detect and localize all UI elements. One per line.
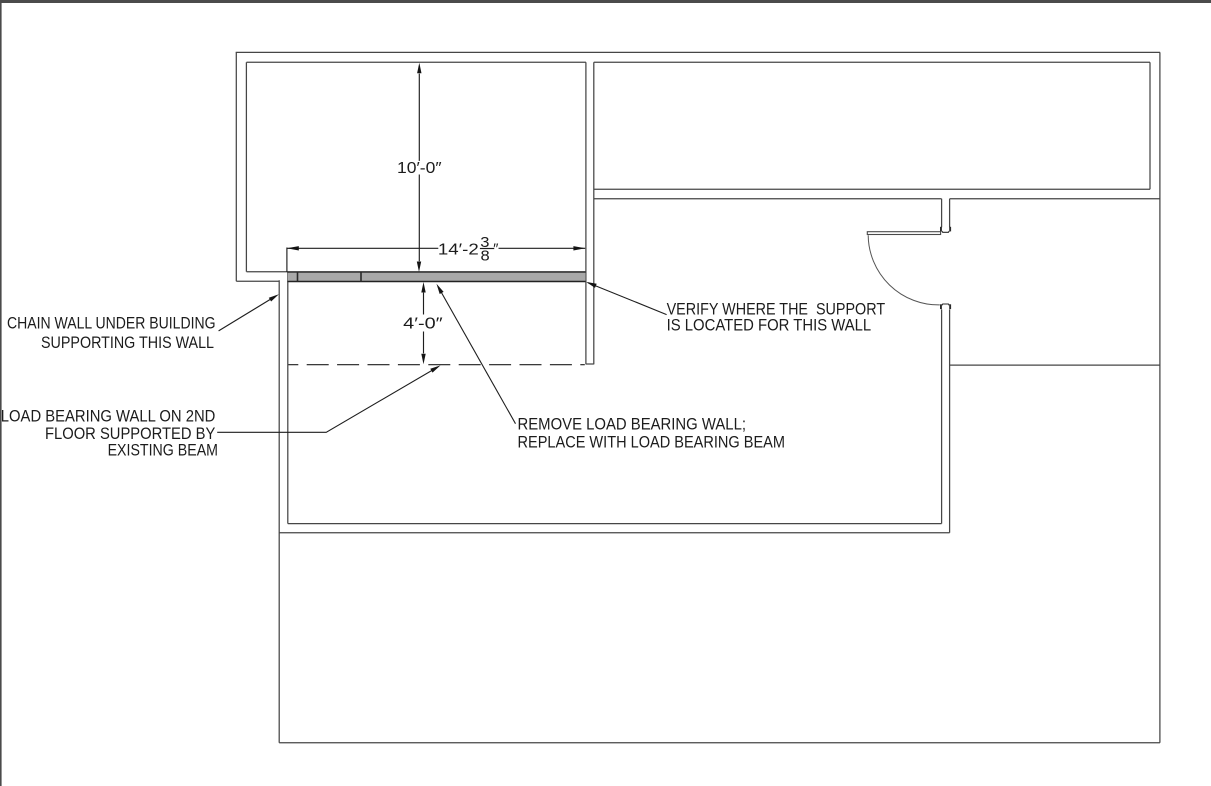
svg-text:4′-0″: 4′-0″ (403, 316, 443, 333)
svg-text:LOAD BEARING WALL ON 2ND: LOAD BEARING WALL ON 2ND (1, 407, 216, 425)
svg-text:REPLACE WITH LOAD BEARING BEAM: REPLACE WITH LOAD BEARING BEAM (518, 433, 786, 451)
svg-text:14′-2: 14′-2 (438, 242, 479, 259)
svg-text:CHAIN WALL UNDER BUILDING: CHAIN WALL UNDER BUILDING (7, 315, 216, 333)
svg-text:″: ″ (493, 241, 499, 258)
svg-text:IS LOCATED FOR THIS WALL: IS LOCATED FOR THIS WALL (667, 317, 872, 335)
svg-text:REMOVE LOAD BEARING WALL;: REMOVE LOAD BEARING WALL; (518, 415, 747, 433)
svg-text:8: 8 (481, 248, 490, 265)
svg-text:EXISTING BEAM: EXISTING BEAM (108, 441, 218, 459)
svg-text:SUPPORTING THIS WALL: SUPPORTING THIS WALL (41, 334, 214, 352)
svg-text:10′-0″: 10′-0″ (397, 160, 442, 177)
